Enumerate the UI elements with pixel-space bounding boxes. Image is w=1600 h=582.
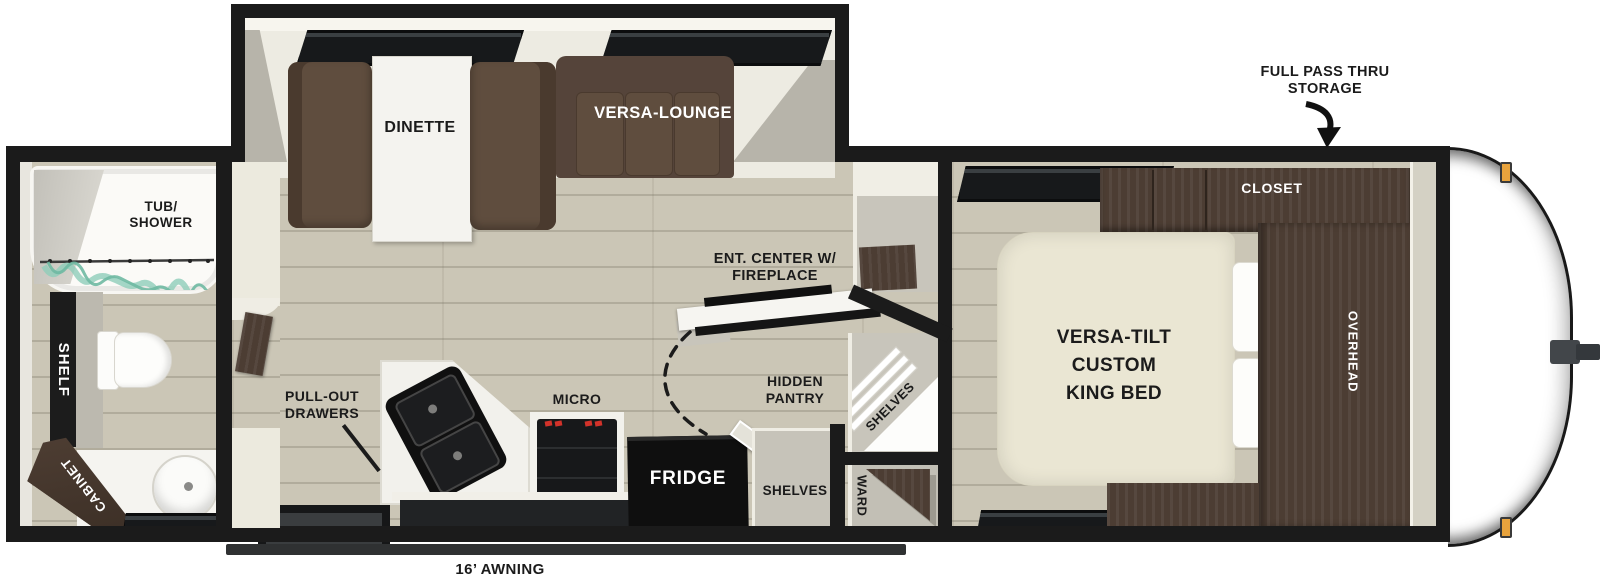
label-pull-out-drawers: PULL-OUT DRAWERS <box>272 388 372 421</box>
wall-top-left <box>6 146 242 162</box>
wardrobe-area: WARD <box>848 465 942 528</box>
wall-top-right <box>838 146 1450 162</box>
dinette-table <box>372 56 472 242</box>
floorplan-canvas: SHELVES WARD SHELF CABINET <box>0 0 1600 582</box>
wall-bedroom-divider <box>938 158 952 542</box>
shower-curtain-icon <box>36 248 218 290</box>
slideout-wall-top <box>231 4 849 18</box>
marker-light-bottom-icon <box>1500 517 1512 538</box>
label-pantry-shelves: SHELVES <box>758 483 832 499</box>
label-awning: 16’ AWNING <box>420 561 580 579</box>
shelf-unit: SHELF <box>50 292 76 447</box>
dinette-bench-right <box>470 62 556 230</box>
label-bed: VERSA-TILT CUSTOM KING BED <box>999 324 1229 408</box>
wall-bath-divider <box>216 146 232 542</box>
wall-shelves-bottom <box>830 452 938 465</box>
label-shelf: SHELF <box>54 342 72 396</box>
wall-front <box>1436 146 1450 542</box>
hitch-tongue <box>1576 344 1600 360</box>
corner-shelves-area: SHELVES <box>848 333 942 453</box>
bath-sink-drain-icon <box>184 482 193 491</box>
dinette-bench-left <box>288 62 372 228</box>
storage-arrow-icon <box>1298 98 1352 150</box>
label-fridge: FRIDGE <box>633 468 743 490</box>
bed-foot-cabinet <box>1107 483 1259 528</box>
toilet-bowl <box>114 332 172 388</box>
label-overhead: OVERHEAD <box>1345 311 1360 393</box>
label-ent-center: ENT. CENTER W/ FIREPLACE <box>690 251 860 285</box>
closet-divider-2 <box>1205 170 1207 230</box>
ent-center-alcove-back <box>853 162 938 196</box>
overhead-cabinet <box>1258 223 1410 528</box>
label-tub-shower: TUB/ SHOWER <box>111 199 211 231</box>
slideout-wall-right <box>835 4 849 162</box>
wall-left <box>6 146 20 542</box>
label-wardrobe: WARD <box>854 475 869 516</box>
label-micro: MICRO <box>542 391 612 408</box>
closet-divider <box>1152 170 1154 230</box>
hidden-pantry-area <box>752 428 833 531</box>
label-dinette: DINETTE <box>370 119 470 138</box>
awning-bar <box>226 544 906 555</box>
slideout-wall-left <box>231 4 245 162</box>
label-full-pass-thru: FULL PASS THRU STORAGE <box>1239 64 1411 98</box>
wall-pantry-right <box>830 424 845 528</box>
label-wardrobe-box: WARD <box>852 467 872 525</box>
label-hidden-pantry: HIDDEN PANTRY <box>745 373 845 406</box>
stove-microwave <box>537 419 617 503</box>
slideout-back-lining <box>245 18 835 31</box>
label-versa-lounge: VERSA-LOUNGE <box>588 104 738 123</box>
label-closet: CLOSET <box>1233 180 1311 197</box>
label-overhead-box: OVERHEAD <box>1338 298 1368 406</box>
marker-light-top-icon <box>1500 162 1512 183</box>
